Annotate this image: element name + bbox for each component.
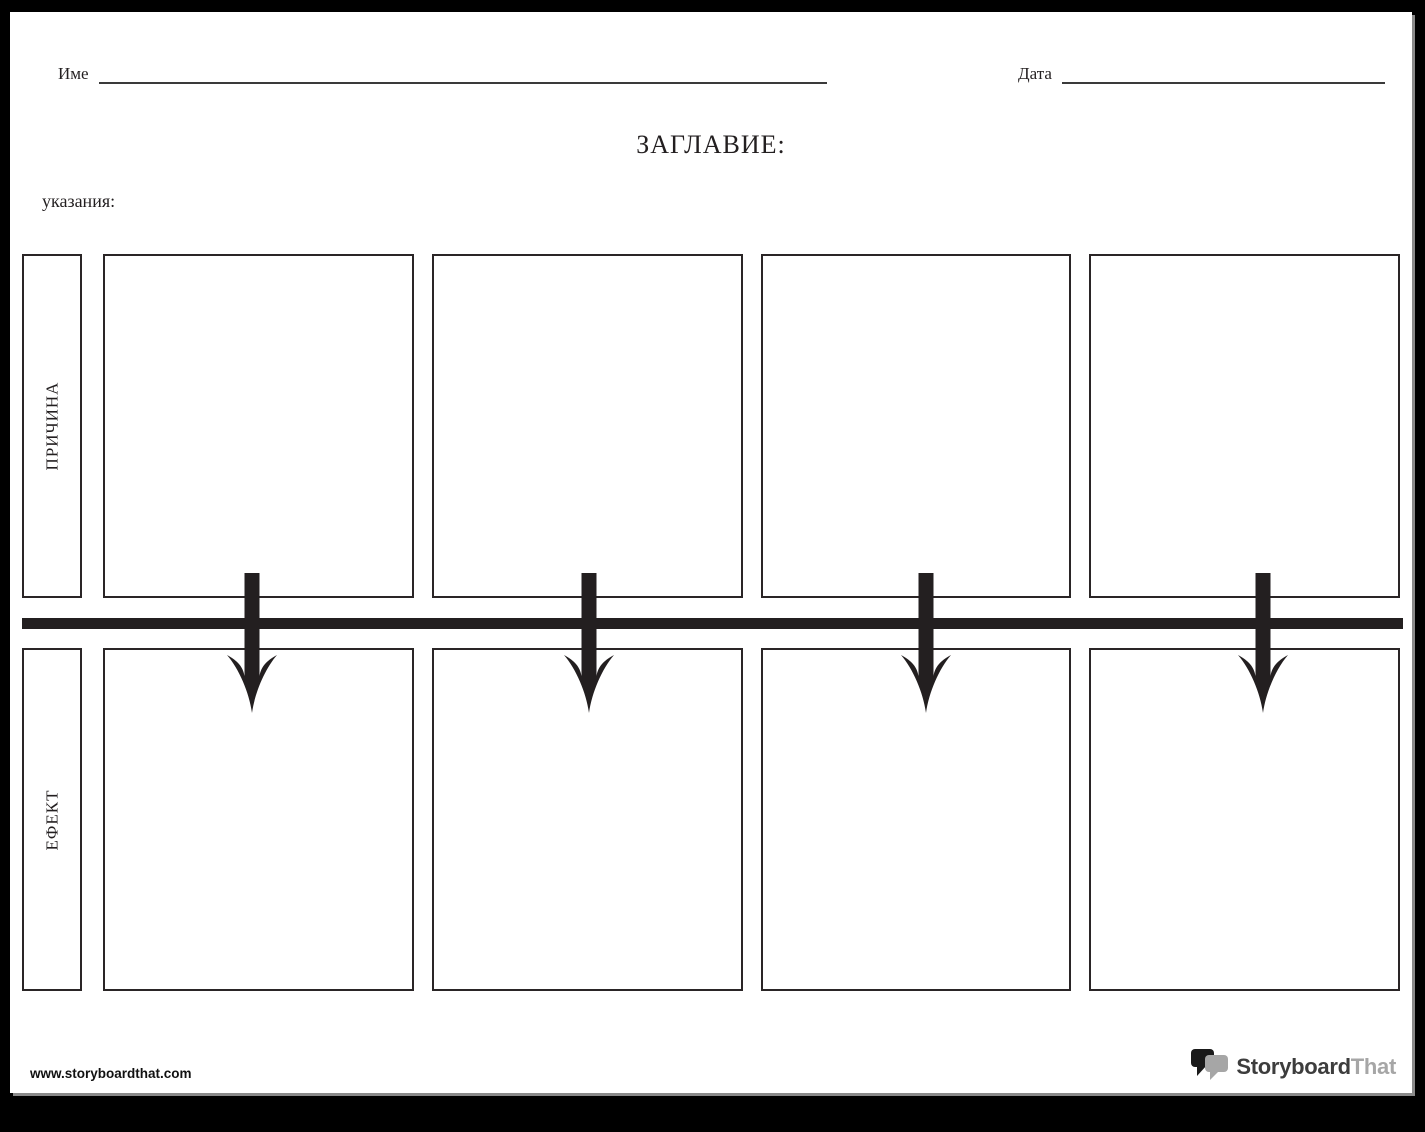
cause-cells-row (103, 254, 1400, 598)
cause-cell-4[interactable] (1089, 254, 1400, 598)
date-label: Дата (1018, 64, 1052, 84)
effect-cells-row (103, 648, 1400, 991)
speech-bubbles-icon (1190, 1047, 1230, 1088)
cause-row-label-box: ПРИЧИНА (22, 254, 82, 598)
date-fill-line[interactable] (1062, 64, 1385, 84)
worksheet-page: Име Дата ЗАГЛАВИЕ: указания: ПРИЧИНА ЕФЕ… (10, 12, 1412, 1093)
worksheet-title: ЗАГЛАВИЕ: (10, 130, 1412, 160)
logo-text-primary: Storyboard (1236, 1054, 1350, 1079)
effect-row-label-box: ЕФЕКТ (22, 648, 82, 991)
name-field-group: Име (58, 64, 827, 84)
cause-cell-2[interactable] (432, 254, 743, 598)
down-arrow-icon (563, 573, 615, 713)
website-url: www.storyboardthat.com (30, 1066, 192, 1081)
cause-cell-3[interactable] (761, 254, 1072, 598)
down-arrow-icon (1237, 573, 1289, 713)
cause-label: ПРИЧИНА (42, 382, 62, 471)
down-arrow-icon (226, 573, 278, 713)
effect-label: ЕФЕКТ (42, 789, 62, 850)
logo-text: StoryboardThat (1236, 1054, 1396, 1080)
down-arrow-icon (900, 573, 952, 713)
cause-cell-1[interactable] (103, 254, 414, 598)
page-frame: Име Дата ЗАГЛАВИЕ: указания: ПРИЧИНА ЕФЕ… (0, 0, 1425, 1132)
name-fill-line[interactable] (99, 64, 827, 84)
date-field-group: Дата (1018, 64, 1385, 84)
instructions-label: указания: (42, 191, 115, 212)
storyboardthat-logo: StoryboardThat (1190, 1047, 1396, 1087)
logo-text-secondary: That (1351, 1054, 1396, 1079)
name-label: Име (58, 64, 89, 84)
